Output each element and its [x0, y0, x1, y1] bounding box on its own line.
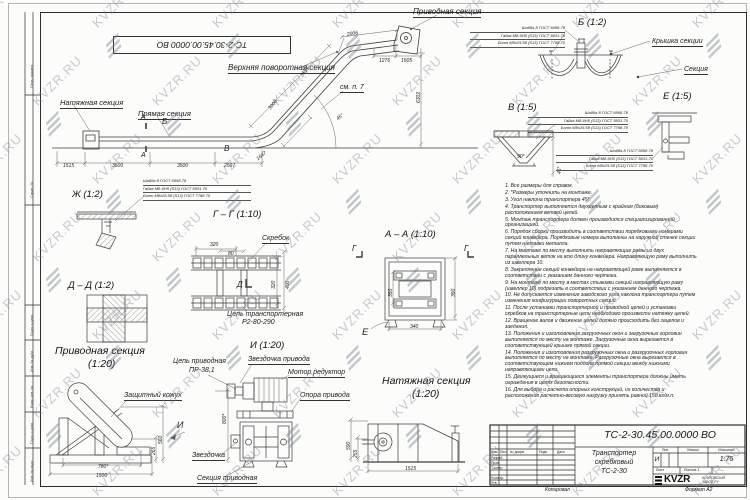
titleblock-row-prov: Пров. — [491, 461, 500, 465]
titleblock-col-podp: Подп. — [539, 450, 548, 454]
drive-dim-1500: 1500 — [96, 474, 107, 479]
titleblock-col-list: Лист — [500, 450, 507, 454]
fastener-line-bolt: Болт М8х25.58 (S13) ГОСТ 7798-70 — [528, 125, 628, 133]
note-item: 6. Порядок сборки производить в соответс… — [505, 230, 697, 248]
tension-dim-255: 255 — [354, 450, 359, 458]
margin-label-inv-podl: Инв. № подл. — [30, 460, 34, 482]
titleblock-lit-value: И — [653, 456, 661, 463]
note-item: 3. Угол наклона транспортера 45°. — [505, 198, 697, 204]
assembly-notes: 1. Все размеры для справок. 2. *Размеры … — [505, 184, 697, 401]
detail-e-geometry — [652, 113, 697, 159]
margin-label-vzam-inv: Взам. инв. № — [30, 386, 34, 408]
label-drive-chain: Цепь приводная — [173, 358, 226, 365]
detail-b-title: Б (1:2) — [578, 18, 606, 28]
label-section-cover: Крышка секции — [652, 38, 703, 47]
label-section: Секция — [684, 66, 708, 75]
fastener-line-bolt: Болт М8х25.58 (S13) ГОСТ 7798-70 — [556, 163, 653, 171]
kvzr-logo: KVZR — [664, 474, 690, 485]
section-dd-geometry — [87, 295, 147, 342]
label-drive-support: Опора привода — [300, 392, 350, 401]
titleblock-row-utv: Утв. — [491, 481, 497, 485]
i-view-title: И (1:20) — [250, 341, 284, 351]
aa-dim-340: 340 — [410, 325, 418, 330]
detail-b-fastener-note: Шайба 8 ГОСТ 6958-78 Гайка М8-6Н5 (S13) … — [470, 25, 565, 48]
fastener-line-bolt: Болт М8х25.58 (S13) ГОСТ 7798-70 — [470, 40, 565, 48]
note-item: 4. Транспортер выполняется двухцепным с … — [505, 205, 697, 217]
fastener-line-washer: Шайба 8 ГОСТ 6958-78 — [143, 178, 251, 186]
note-item: 10. Не допускается изменение заводского … — [505, 293, 697, 305]
margin-label-sprav: Справ. № — [30, 182, 34, 198]
fastener-line-washer: Шайба 8 ГОСТ 6958-78 — [528, 110, 628, 118]
drive-dim-265: 265 — [152, 447, 157, 455]
tension-view-scale: (1:20) — [412, 389, 439, 400]
titleblock-doc-number: ТС-2-30.45.00.0000 ВО — [577, 429, 743, 441]
fastener-line-nut: Гайка М8-6Н5 (S13) ГОСТ 5931-70 — [528, 118, 628, 126]
margin-label-podp-data-1: Подп. и дата — [30, 315, 34, 336]
aa-dim-350: 350 — [389, 289, 394, 297]
copied-by-label: Копировал — [545, 487, 570, 493]
detail-v-angle-90: 90° — [517, 155, 525, 160]
drive-dim-780: 780* — [98, 465, 108, 470]
detail-zh-geometry — [77, 197, 143, 249]
kvzr-logo-subtext: КОВРОВСКИЙ ЗАВОД.РУ — [702, 476, 742, 484]
detail-mark-e: Е — [362, 328, 368, 338]
margin-label-podp-data-2: Подп. и дата — [30, 423, 34, 444]
titleblock-row-razrab: Разраб. — [491, 456, 503, 460]
note-item: 5. Монтаж транспортера должен производит… — [505, 218, 697, 230]
aa-dim-390: 390 — [452, 289, 457, 297]
titleblock-name-line1: Транспортер — [577, 450, 651, 457]
drive-view-scale: (1:20) — [88, 359, 115, 370]
section-mark-a-top: А — [141, 114, 146, 121]
titleblock-name-line2: скребковый — [577, 459, 651, 466]
tension-dim-590: 590 — [347, 442, 352, 450]
dim-3500-a: 3500 — [112, 164, 123, 169]
fastener-line-nut: Гайка М8-6Н5 (S13) ГОСТ 5931-70 — [143, 186, 251, 194]
label-scraper: Скребок — [262, 235, 289, 244]
dim-6302: 6302 — [417, 92, 422, 103]
label-see-note-7: см. п. 7 — [340, 84, 364, 93]
fastener-line-nut: Гайка М8-6Н5 (S13) ГОСТ 5931-70 — [556, 156, 653, 164]
view-mark-i: И — [177, 421, 183, 430]
label-conveyor-chain-model: Р2-80-290 — [242, 319, 275, 326]
detail-e-title: Е (1:5) — [663, 92, 692, 102]
detail-zh-fastener-note: Шайба 8 ГОСТ 6958-78 Гайка М8-6Н5 (S13) … — [143, 178, 251, 201]
titleblock-col-izm: Изм. — [491, 450, 498, 454]
note-item: 7. На монтаже по месту выполнить направл… — [505, 249, 697, 267]
titleblock-sheet-label: Лист — [656, 468, 664, 472]
detail-mark-v: В — [224, 145, 229, 153]
dim-1505: 1505 — [401, 59, 412, 64]
titleblock-scale-value: 1:75 — [708, 456, 745, 463]
note-item: 9. На монтаже по месту в местах стыковки… — [505, 281, 697, 293]
tension-dim-1515: 1515 — [405, 467, 416, 472]
note-item: 13. Положения и изготовления загрузочных… — [505, 332, 697, 350]
section-mark-a-bottom: А — [141, 152, 146, 159]
note-item: 2. *Размеры уточнить на монтаже. — [505, 191, 697, 197]
gg-dim-320-side: 320 — [272, 281, 277, 289]
titleblock-name-line3: ТС-2-30 — [577, 468, 651, 475]
fastener-line-bolt: Болт М8х25.58 (S13) ГОСТ 7798-70 — [143, 193, 251, 201]
titleblock-mass-header: Масса — [678, 448, 708, 452]
detail-zh-title: Ж (1:2) — [72, 190, 103, 200]
note-item: 12. Вращение валов и движение цепей долж… — [505, 319, 697, 331]
fastener-line-washer: Шайба 8 ГОСТ 6958-78 — [556, 148, 653, 156]
label-protective-guard: Защитный кожух — [124, 392, 182, 401]
fastener-line-washer: Шайба 8 ГОСТ 6958-78 — [470, 25, 565, 33]
drive-dim-560: 560 — [159, 436, 164, 444]
gg-dim-80: 80 — [228, 252, 234, 257]
section-dd-title: Д – Д (1:2) — [68, 281, 114, 291]
margin-label-perv-primen: Перв. примен. — [30, 64, 34, 88]
detail-mark-b: Б — [162, 118, 167, 126]
i-view-geometry — [221, 364, 301, 477]
titleblock-col-doc: № докум. — [510, 450, 525, 454]
tension-view-geometry — [348, 417, 465, 473]
note-item: 14. Положения и изготовления разгрузочны… — [505, 351, 697, 375]
dim-1515: 1515 — [63, 164, 74, 169]
format-label: Формат А2 — [685, 487, 712, 493]
titleblock-row-nkontr: Н.контр. — [491, 476, 504, 480]
titleblock-col-data: Дата — [557, 450, 565, 454]
section-mark-g-right: Г — [464, 245, 468, 253]
label-drive-chain-model: ПР-38,1 — [189, 367, 215, 374]
label-sprocket: Звездочка — [192, 452, 225, 461]
gg-dim-320-top: 320 — [210, 243, 218, 248]
label-top-turn-section: Верхняя поворотная секция — [228, 64, 335, 74]
label-drive-sprocket: Звездочка привода — [248, 356, 310, 365]
section-mark-d: Д — [237, 281, 243, 289]
titleblock-row-tkontr: Т.контр. — [491, 466, 503, 470]
drawing-sheet: ТС-2-30.45.00.0000 ВО Верхняя поворотная… — [0, 0, 750, 500]
label-tension-section: Натяжная секция — [60, 99, 123, 109]
section-mark-g-left: Г — [352, 245, 356, 253]
margin-label-inv-dubl: Инв. № дубл. — [30, 350, 34, 372]
note-item: 8. Закрепление секций конвейера на напра… — [505, 268, 697, 280]
kvzr-logo-bars-icon — [655, 476, 662, 485]
gg-dim-400: 400 — [286, 281, 291, 289]
drive-dim-800: 800* — [223, 414, 228, 424]
top-left-stamp: ТС-2-30.45.00.0000 ВО — [113, 36, 291, 54]
section-gg-geometry — [191, 243, 286, 312]
titleblock-sheets-label: Листов 1 — [684, 468, 700, 472]
titleblock-lit-header: Лит. — [653, 448, 678, 452]
detail-e-fastener-note: Шайба 8 ГОСТ 6958-78 Гайка М8-6Н5 (S13) … — [556, 148, 653, 171]
fastener-line-nut: Гайка М8-6Н5 (S13) ГОСТ 5931-70 — [470, 33, 565, 41]
label-drive-section-top: Приводная секция — [413, 8, 481, 18]
label-motor-reducer: Мотор редуктор — [288, 369, 345, 378]
label-conveyor-chain: Цепь транспортерная — [227, 311, 303, 318]
section-gg-title: Г – Г (1:10) — [213, 210, 261, 220]
label-drive-section-bottom: Секция приводная — [197, 475, 257, 484]
detail-v-fastener-note: Шайба 8 ГОСТ 6958-78 Гайка М8-6Н5 (S13) … — [528, 110, 628, 133]
tension-view-title: Натяжная секция — [382, 376, 471, 387]
section-aa-title: А – А (1:10) — [385, 230, 436, 240]
note-item: 16. Для выбора и расчета опорных констру… — [505, 388, 697, 400]
note-item: 15. Движущиеся и вращающиеся элементы тр… — [505, 375, 697, 387]
dim-1276: 1276 — [379, 59, 390, 64]
titleblock-scale-header: Масштаб — [708, 448, 745, 452]
dim-3500-b: 3500 — [177, 164, 188, 169]
dim-2507: 2507 — [224, 164, 235, 169]
note-item: 11. После установки транспортерной и при… — [505, 306, 697, 318]
drive-view-title: Приводная секция — [55, 346, 145, 357]
